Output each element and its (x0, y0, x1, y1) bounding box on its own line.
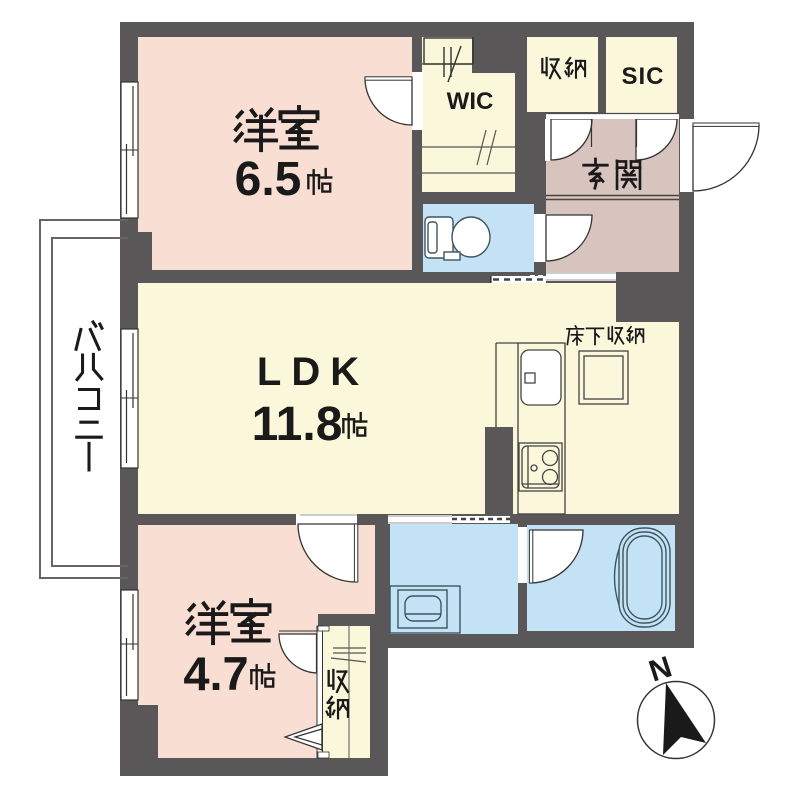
svg-text:LDK: LDK (257, 350, 369, 394)
svg-text:11.8: 11.8 (252, 398, 343, 451)
svg-text:WIC: WIC (447, 88, 494, 115)
svg-text:4.7: 4.7 (183, 647, 248, 700)
svg-text:SIC: SIC (621, 63, 664, 90)
svg-text:6.5: 6.5 (235, 153, 302, 206)
